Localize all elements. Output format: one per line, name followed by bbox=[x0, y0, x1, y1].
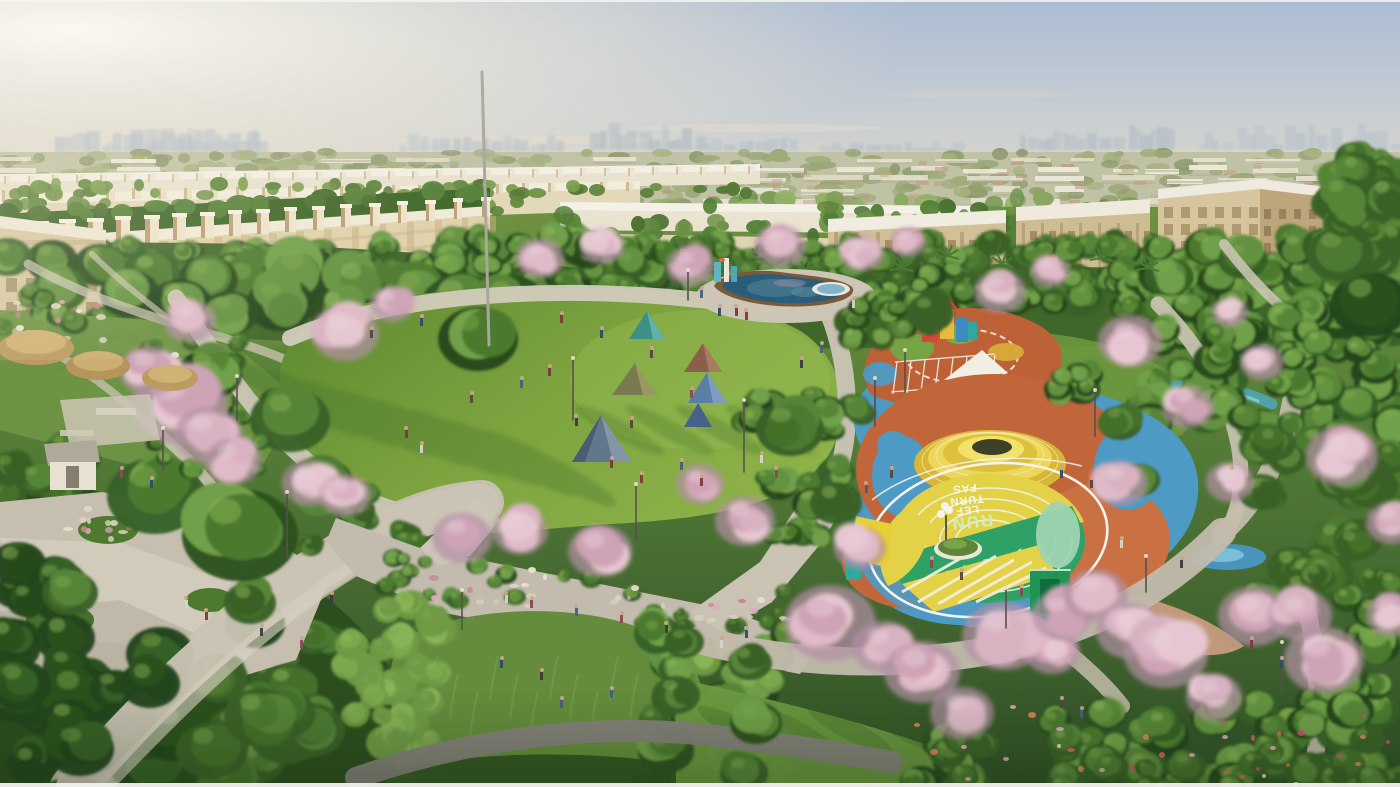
svg-text:LEF: LEF bbox=[955, 503, 980, 517]
svg-text:FAS: FAS bbox=[952, 481, 978, 495]
